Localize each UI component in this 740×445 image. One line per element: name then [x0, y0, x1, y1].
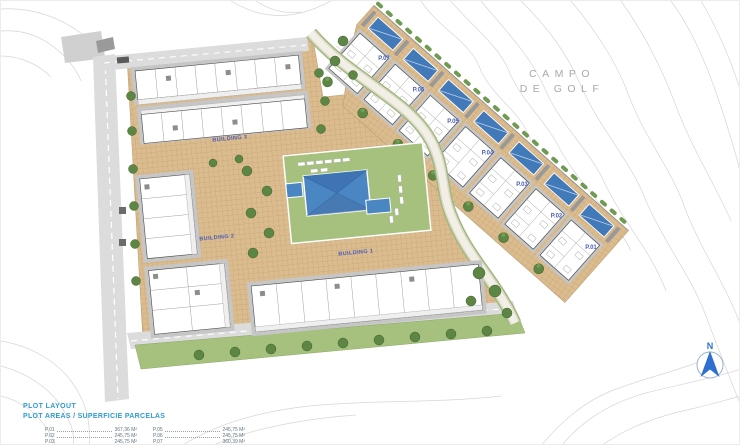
golf-label-line2: DE GOLF	[520, 83, 605, 95]
site-plan-svg: BUILDING 3 BUILDING 2 BUILDING 1 P.07 P.…	[1, 1, 740, 445]
plot-label-p05: P.05	[447, 119, 459, 125]
legend: PLOT LAYOUT PLOT AREAS / SUPERFICIE PARC…	[23, 403, 165, 420]
legend-column-2: P.05245,75 M² P.06245,75 M² P.07360,39 M…	[153, 427, 245, 445]
legend-subtitle: PLOT AREAS / SUPERFICIE PARCELAS	[23, 413, 165, 420]
north-arrow-label: N	[707, 341, 714, 351]
site-plan-page: BUILDING 3 BUILDING 2 BUILDING 1 P.07 P.…	[0, 0, 740, 445]
plot-label-p03: P.03	[516, 182, 528, 188]
plot-label-p07: P.07	[378, 56, 390, 62]
plot-label-p06: P.06	[413, 88, 425, 94]
plot-label-p04: P.04	[482, 151, 494, 157]
small-pool-right	[366, 198, 391, 214]
parked-car	[117, 56, 129, 63]
legend-plot-id: P.07	[153, 439, 163, 445]
legend-row: P.03245,75 M²	[45, 439, 137, 445]
small-pool-left	[286, 182, 303, 197]
legend-column-1: P.01367,36 M² P.02245,75 M² P.03245,75 M…	[45, 427, 137, 445]
legend-plot-id: P.03	[45, 439, 55, 445]
legend-plot-area: 360,39 M²	[222, 439, 245, 445]
main-pool	[303, 170, 371, 216]
legend-plot-area: 245,75 M²	[114, 439, 137, 445]
pool-amenity	[283, 143, 431, 244]
plot-label-p02: P.02	[551, 214, 563, 220]
legend-title: PLOT LAYOUT	[23, 403, 165, 410]
legend-row: P.07360,39 M²	[153, 439, 245, 445]
plot-label-p01: P.01	[585, 245, 597, 251]
utility-box	[119, 207, 126, 214]
golf-label-line1: CAMPO	[529, 68, 595, 80]
utility-box	[119, 239, 126, 246]
